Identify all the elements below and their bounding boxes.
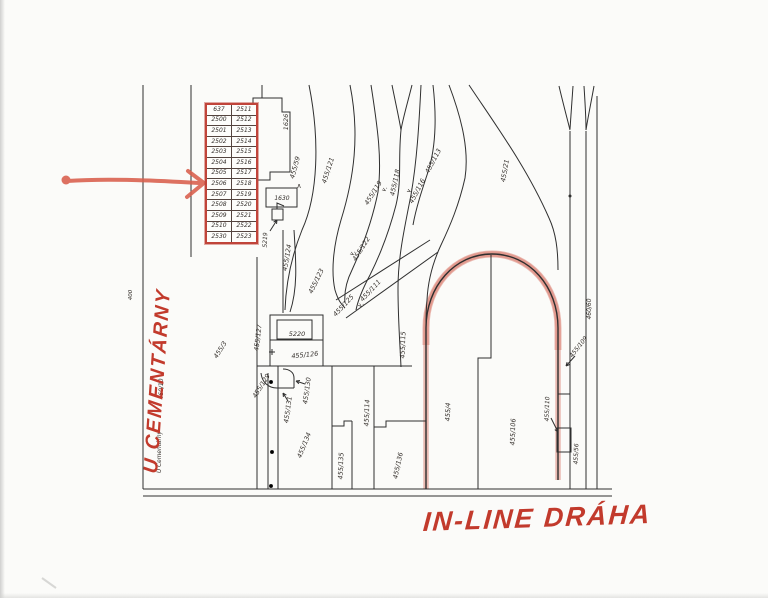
- parcel-number-cell: 2521: [232, 210, 258, 221]
- parcel-number-cell: 2509: [206, 210, 232, 221]
- parcel-number-cell: 2514: [232, 136, 258, 147]
- parcel-label: 455/115: [399, 331, 408, 358]
- parcel-number-cell: 2511: [232, 104, 258, 115]
- parcel-table-row: 6372511: [206, 104, 257, 115]
- parcel-label: 455/118: [388, 169, 401, 197]
- parcel-label: 455/122: [351, 235, 372, 262]
- parcel-label: U Cementárny: [156, 430, 163, 472]
- parcel-label: 455/125: [331, 293, 355, 318]
- parcel-number-cell: 2501: [206, 126, 232, 137]
- parcel-number-cell: 2506: [206, 179, 232, 190]
- parcel-number-cell: 2512: [232, 115, 258, 126]
- parcel-number-cell: 2522: [232, 221, 258, 232]
- parcel-label: 455/3: [212, 340, 229, 360]
- parcel-label: 455/123: [307, 267, 326, 295]
- parcel-label: 5220: [289, 330, 306, 338]
- parcel-label: 455/113: [423, 147, 443, 175]
- parcel-label: 455/136: [391, 452, 404, 480]
- parcel-label: 455/114: [363, 399, 372, 426]
- parcel-number-cell: 2503: [206, 147, 232, 158]
- parcel-number-cell: 2510: [206, 221, 232, 232]
- parcel-label: 455/119: [363, 179, 384, 206]
- parcel-table-row: 25022514: [206, 136, 257, 147]
- parcel-label: 460/60: [586, 298, 593, 319]
- parcel-number-cell: 2513: [232, 126, 258, 137]
- parcel-number-cell: 2520: [232, 200, 258, 211]
- parcel-table-row: 25092521: [206, 210, 257, 221]
- parcel-number-cell: 2515: [232, 147, 258, 158]
- parcel-label: 455/110: [544, 396, 552, 421]
- parcel-label: 455/4: [444, 402, 453, 421]
- label-arrow: [270, 220, 277, 231]
- parcel-label: 455/56: [573, 443, 581, 465]
- parcel-number-cell: 2508: [206, 200, 232, 211]
- parcel-table-row: 25052517: [206, 168, 257, 179]
- parcel-table-row: 25032515: [206, 147, 257, 158]
- parcel-label: 1630: [274, 195, 289, 202]
- parcel-label: 455/130: [301, 377, 313, 405]
- parcel-label: 455/127: [252, 323, 263, 352]
- parcel-label: 455/126: [291, 350, 319, 361]
- parcel-number-cell: 637: [206, 104, 232, 115]
- parcel-label: 460/10: [158, 378, 165, 399]
- inline-track-highlight-arc: [426, 254, 558, 350]
- parcel-number-cell: 2502: [206, 136, 232, 147]
- parcel-label: 455/21: [499, 159, 511, 183]
- parcel-number-cell: 2500: [206, 115, 232, 126]
- parcel-label: 455/135: [337, 452, 346, 479]
- map-symbol: ∧: [296, 182, 301, 190]
- parcel-number-cell: 2507: [206, 189, 232, 200]
- parcel-label: 455/131: [282, 396, 294, 424]
- parcel-number-cell: 2523: [232, 232, 258, 243]
- parcel-table-row: 25062518: [206, 179, 257, 190]
- parcel-number-cell: 2505: [206, 168, 232, 179]
- scanned-map-page: 1626455/59455/121455/119455/118455/11645…: [0, 0, 768, 598]
- inline-track-highlight: [426, 254, 558, 489]
- parcel-number-cell: 2516: [232, 157, 258, 168]
- parcel-number-cell: 2530: [206, 232, 232, 243]
- parcel-number-cell: 2519: [232, 189, 258, 200]
- parcel-table-row: 25072519: [206, 189, 257, 200]
- parcel-table-row: 25302523: [206, 232, 257, 243]
- parcel-label: 5219: [262, 232, 270, 248]
- parcel-number-cell: 2518: [232, 179, 258, 190]
- parcel-label: 455/134: [295, 431, 313, 459]
- parcel-number-cell: 2517: [232, 168, 258, 179]
- parcel-table-row: 25002512: [206, 115, 257, 126]
- parcel-label: 1626: [282, 114, 290, 131]
- parcel-table-row: 25082520: [206, 200, 257, 211]
- parcel-table-row: 25042516: [206, 157, 257, 168]
- parcel-table-row: 25012513: [206, 126, 257, 137]
- parcel-label: 455/121: [320, 156, 336, 184]
- parcel-number-table: 6372511250025122501251325022514250325152…: [205, 103, 258, 244]
- parcel-label: 400: [128, 289, 134, 300]
- cadastral-map: 1626455/59455/121455/119455/118455/11645…: [0, 0, 768, 598]
- annotation-arrow: [62, 171, 205, 197]
- parcel-table-row: 25102522: [206, 221, 257, 232]
- parcel-label: 455/106: [509, 418, 518, 445]
- parcel-number-cell: 2504: [206, 157, 232, 168]
